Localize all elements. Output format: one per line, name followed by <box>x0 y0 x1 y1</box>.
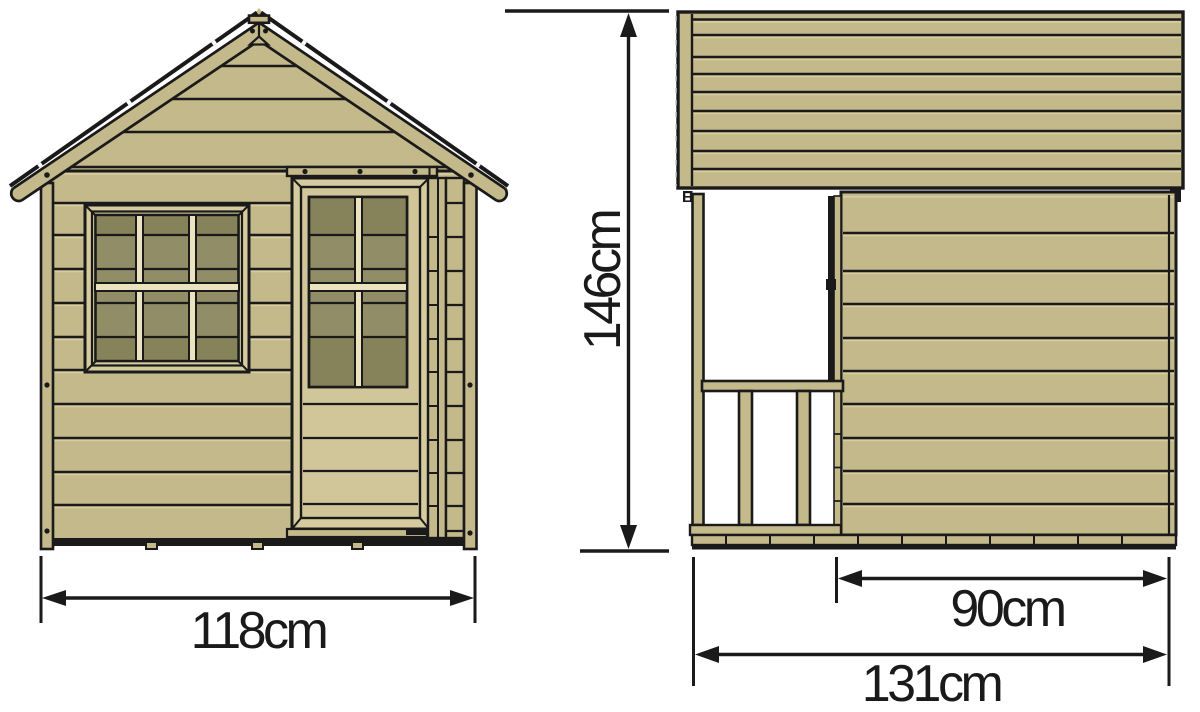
svg-text:146cm: 146cm <box>574 212 632 351</box>
svg-text:131cm: 131cm <box>862 655 1001 712</box>
svg-text:90cm: 90cm <box>950 580 1063 638</box>
svg-text:118cm: 118cm <box>191 602 326 660</box>
